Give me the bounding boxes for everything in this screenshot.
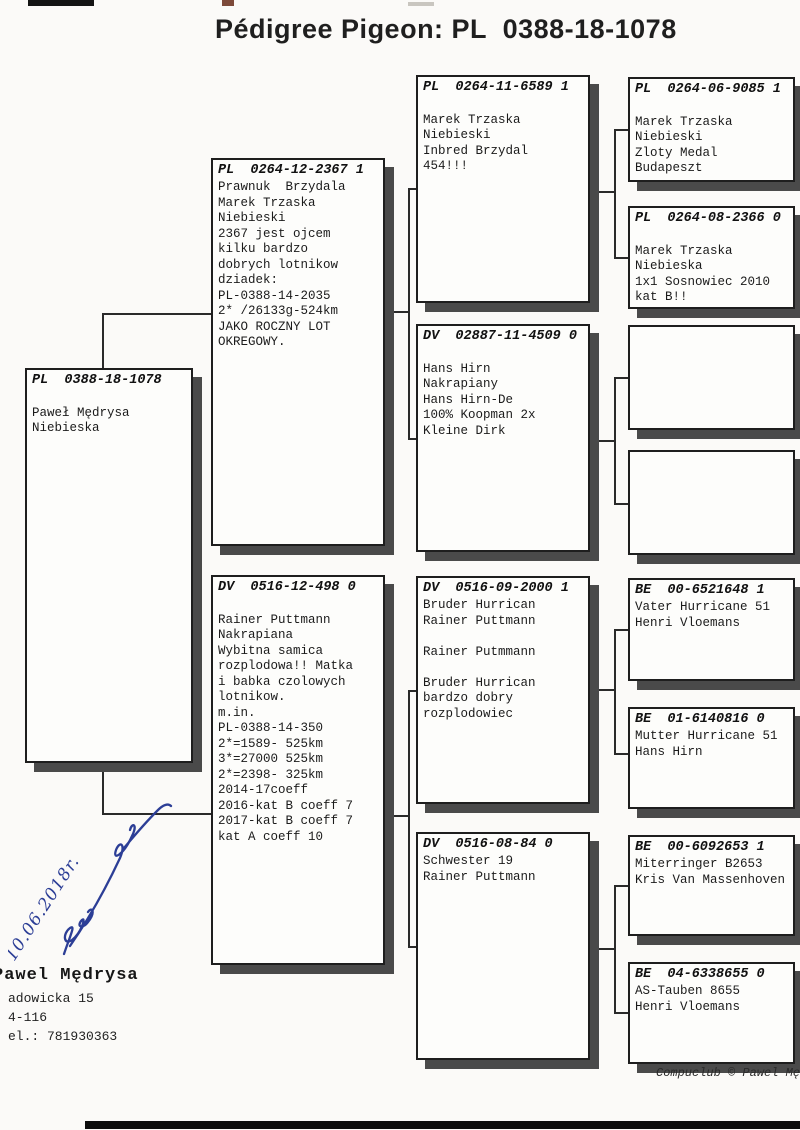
ring-number	[630, 452, 793, 454]
pedigree-box-ggd-4: BE 04-6338655 0 AS-Tauben 8655 Henri Vlo…	[628, 962, 795, 1064]
pedigree-notes: Vater Hurricane 51 Henri Vloemans	[630, 600, 793, 631]
connector-line	[408, 188, 410, 440]
connector-line	[102, 313, 212, 315]
pedigree-notes: Schwester 19 Rainer Puttmann	[418, 854, 588, 885]
pedigree-notes: Rainer Puttmann Nakrapiana Wybitna samic…	[213, 597, 383, 845]
connector-line	[614, 885, 629, 887]
ring-number: PL 0264-06-9085 1	[630, 79, 793, 99]
scan-artifact	[28, 0, 94, 6]
ring-number: DV 0516-08-84 0	[418, 834, 588, 854]
signature: 10.06.2018r.	[8, 796, 178, 981]
pedigree-notes: Paweł Mędrysa Niebieska	[27, 390, 191, 437]
owner-address-line2: 4-116	[8, 1010, 47, 1025]
pedigree-box-grandsire-paternal: PL 0264-11-6589 1 Marek Trzaska Niebiesk…	[416, 75, 590, 303]
connector-line	[590, 440, 616, 442]
pedigree-box-sire: PL 0264-12-2367 1 Prawnuk Brzydala Marek…	[211, 158, 385, 546]
connector-line	[614, 629, 629, 631]
pedigree-document: Pédigree Pigeon: PL 0388-18-1078 PL 0388…	[0, 0, 800, 1130]
pedigree-box-ggs-2-empty	[628, 325, 795, 430]
pedigree-notes: Marek Trzaska Niebieska 1x1 Sosnowiec 20…	[630, 228, 793, 306]
pedigree-box-ggs-3: BE 00-6521648 1 Vater Hurricane 51 Henri…	[628, 578, 795, 681]
pedigree-box-ggs-4: BE 00-6092653 1 Miterringer B2653 Kris V…	[628, 835, 795, 936]
connector-line	[614, 753, 629, 755]
connector-line	[385, 311, 410, 313]
pedigree-notes: Miterringer B2653 Kris Van Massenhoven	[630, 857, 793, 888]
pedigree-notes: Prawnuk Brzydala Marek Trzaska Niebieski…	[213, 180, 383, 351]
scan-artifact	[408, 2, 434, 6]
pedigree-box-granddam-paternal: DV 02887-11-4509 0 Hans Hirn Nakrapiany …	[416, 324, 590, 552]
connector-line	[614, 503, 629, 505]
handwritten-date: 10.06.2018r.	[8, 852, 84, 964]
pedigree-notes: AS-Tauben 8655 Henri Vloemans	[630, 984, 793, 1015]
connector-line	[614, 1012, 629, 1014]
connector-line	[614, 885, 616, 1014]
connector-line	[590, 191, 616, 193]
ring-number: BE 01-6140816 0	[630, 709, 793, 729]
ring-number: PL 0264-12-2367 1	[213, 160, 383, 180]
connector-line	[614, 129, 616, 259]
ring-number: DV 02887-11-4509 0	[418, 326, 588, 346]
ring-number: BE 00-6092653 1	[630, 837, 793, 857]
software-credit: Compuclub © Pawel Mędrysa	[656, 1066, 800, 1080]
connector-line	[614, 377, 629, 379]
ring-number: BE 00-6521648 1	[630, 580, 793, 600]
pedigree-box-ggs-1: PL 0264-06-9085 1 Marek Trzaska Niebiesk…	[628, 77, 795, 182]
signature-stroke	[64, 805, 171, 954]
connector-line	[614, 629, 616, 755]
pedigree-box-ggd-2-empty	[628, 450, 795, 555]
ring-number: PL 0264-11-6589 1	[418, 77, 588, 97]
ring-number: PL 0264-08-2366 0	[630, 208, 793, 228]
pedigree-box-ggd-3: BE 01-6140816 0 Mutter Hurricane 51 Hans…	[628, 707, 795, 809]
page-title: Pédigree Pigeon: PL 0388-18-1078	[215, 14, 677, 45]
pedigree-box-granddam-maternal: DV 0516-08-84 0 Schwester 19 Rainer Putt…	[416, 832, 590, 1060]
connector-line	[614, 129, 629, 131]
pedigree-notes: Marek Trzaska Niebieski Inbred Brzydal 4…	[418, 97, 588, 175]
ring-number	[630, 327, 793, 329]
connector-line	[102, 313, 104, 369]
pedigree-box-dam: DV 0516-12-498 0 Rainer Puttmann Nakrapi…	[211, 575, 385, 965]
pedigree-box-subject: PL 0388-18-1078 Paweł Mędrysa Niebieska	[25, 368, 193, 763]
pedigree-notes: Hans Hirn Nakrapiany Hans Hirn-De 100% K…	[418, 346, 588, 439]
pedigree-notes: Mutter Hurricane 51 Hans Hirn	[630, 729, 793, 760]
connector-line	[614, 377, 616, 505]
pedigree-box-ggd-1: PL 0264-08-2366 0 Marek Trzaska Niebiesk…	[628, 206, 795, 309]
scan-artifact	[85, 1121, 800, 1129]
connector-line	[614, 257, 629, 259]
ring-number: DV 0516-12-498 0	[213, 577, 383, 597]
ring-number: BE 04-6338655 0	[630, 964, 793, 984]
connector-line	[385, 815, 410, 817]
pedigree-notes: Bruder Hurrican Rainer Puttmann Rainer P…	[418, 598, 588, 722]
pedigree-box-grandsire-maternal: DV 0516-09-2000 1 Bruder Hurrican Rainer…	[416, 576, 590, 804]
owner-phone: el.: 781930363	[8, 1029, 117, 1044]
scan-artifact	[222, 0, 234, 6]
connector-line	[590, 689, 616, 691]
ring-number: DV 0516-09-2000 1	[418, 578, 588, 598]
owner-address-line1: adowicka 15	[8, 991, 94, 1006]
pedigree-notes: Marek Trzaska Niebieski Zloty Medal Buda…	[630, 99, 793, 177]
connector-line	[408, 690, 410, 948]
ring-number: PL 0388-18-1078	[27, 370, 191, 390]
connector-line	[590, 948, 616, 950]
